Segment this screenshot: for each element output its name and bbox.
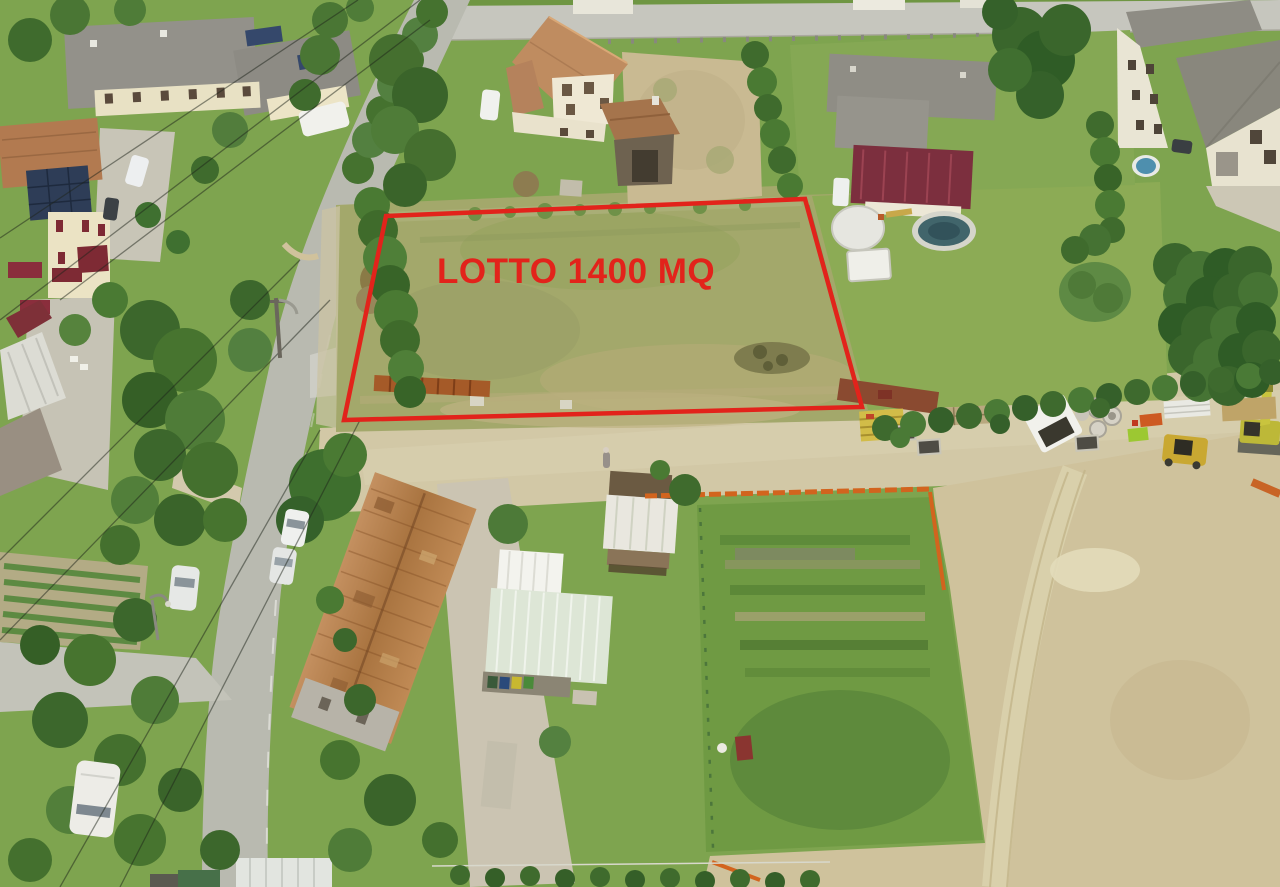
green-bin — [523, 676, 534, 689]
aerial-photo: LOTTO 1400 MQ — [0, 0, 1280, 887]
concrete-pad — [560, 400, 572, 409]
awning — [8, 262, 42, 278]
dark-car — [1171, 139, 1193, 155]
concrete-pad — [470, 396, 484, 406]
white-car — [269, 547, 298, 586]
steps — [572, 690, 597, 706]
sand-patch — [1050, 548, 1140, 592]
background-building — [573, 0, 633, 14]
yellow-bin — [511, 676, 522, 689]
barn-opening — [632, 150, 658, 182]
white-tarp — [832, 206, 884, 250]
background-building — [853, 0, 905, 10]
red-bin — [878, 390, 892, 399]
round-pool — [912, 211, 976, 251]
olive-tree — [1059, 262, 1131, 322]
palm-tree — [166, 230, 190, 254]
person-walking — [603, 447, 610, 468]
red-porch-roof — [851, 145, 974, 209]
white-chair — [70, 356, 78, 362]
white-car — [832, 178, 849, 207]
blue-bin — [499, 677, 510, 690]
kiddie-pool — [1132, 155, 1160, 177]
mint-roof-lower — [485, 588, 613, 684]
awning — [52, 268, 82, 282]
lot-area-label: LOTTO 1400 MQ — [437, 252, 715, 292]
white-box-trailer — [847, 249, 891, 282]
white-car — [168, 565, 200, 612]
wood-shed — [601, 471, 680, 577]
green-bin — [487, 676, 498, 689]
chimney — [90, 40, 97, 47]
lime-equipment — [1127, 427, 1148, 442]
neighbor-yard-objects — [847, 249, 891, 282]
photo-canvas — [0, 0, 1280, 887]
garage-door — [1216, 152, 1238, 176]
garden-row — [735, 548, 855, 560]
white-car — [479, 89, 500, 121]
dirt-pile — [734, 342, 810, 374]
red-wheelbarrow — [735, 735, 753, 761]
chimney — [652, 96, 659, 105]
white-chair — [80, 364, 88, 370]
palm-tree — [135, 202, 161, 228]
orange-machine — [1139, 413, 1162, 427]
chimney — [160, 30, 167, 37]
concrete-pad — [559, 179, 582, 196]
dry-bush — [513, 171, 539, 197]
white-object — [717, 743, 727, 753]
